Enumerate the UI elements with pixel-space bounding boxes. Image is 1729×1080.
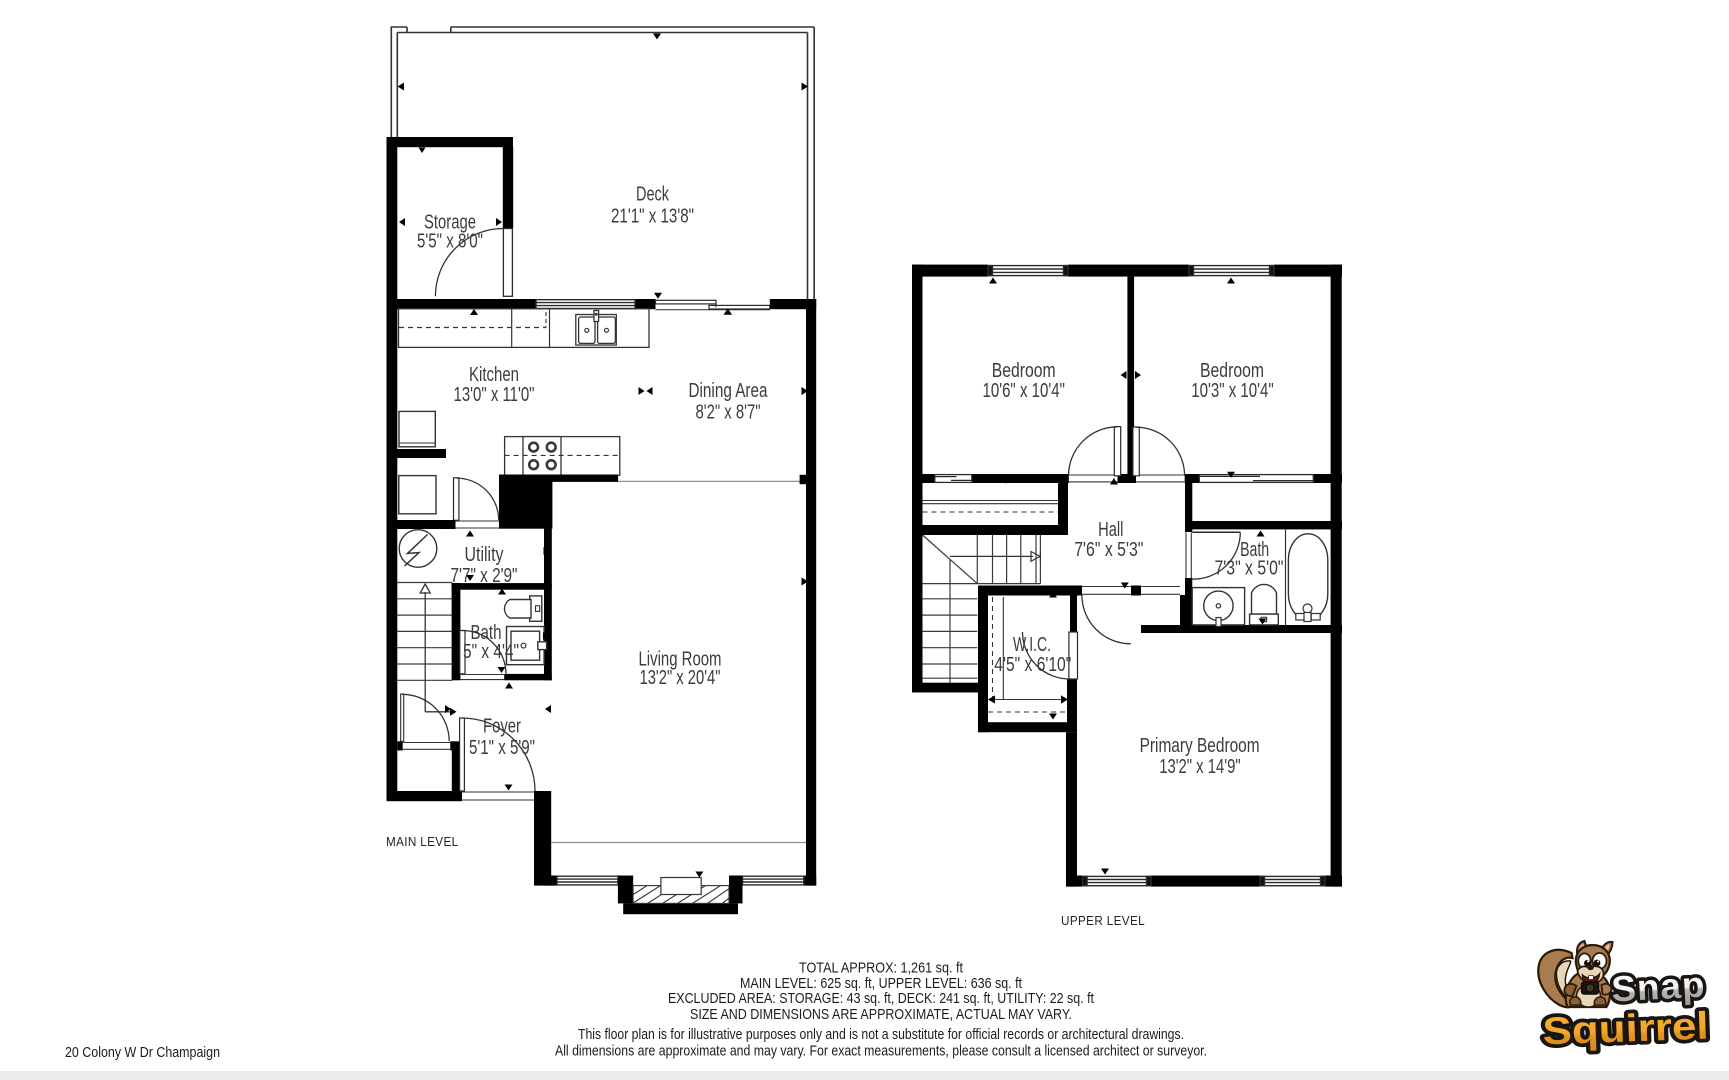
svg-text:Snap: Snap: [1610, 964, 1706, 1010]
svg-text:4'5" x 6'10": 4'5" x 6'10": [994, 654, 1071, 676]
svg-text:Squirrel: Squirrel: [1542, 1005, 1709, 1054]
svg-text:Deck: Deck: [636, 184, 670, 206]
svg-text:21'1" x 13'8": 21'1" x 13'8": [611, 206, 694, 228]
svg-text:13'2" x 20'4": 13'2" x 20'4": [640, 667, 721, 689]
svg-text:Primary Bedroom: Primary Bedroom: [1140, 735, 1260, 757]
svg-text:SIZE AND DIMENSIONS ARE APPROX: SIZE AND DIMENSIONS ARE APPROXIMATE, ACT…: [690, 1006, 1072, 1023]
svg-text:20 Colony W Dr Champaign: 20 Colony W Dr Champaign: [65, 1044, 220, 1061]
svg-text:7'7" x 2'9": 7'7" x 2'9": [451, 565, 518, 587]
svg-text:8'2" x 8'7": 8'2" x 8'7": [696, 402, 761, 424]
svg-text:7'6" x 5'3": 7'6" x 5'3": [1074, 539, 1143, 561]
svg-text:Bedroom: Bedroom: [992, 360, 1056, 382]
svg-text:Utility: Utility: [465, 544, 504, 566]
svg-text:5'5" x 8'0": 5'5" x 8'0": [417, 231, 483, 253]
svg-text:This floor plan is for illustr: This floor plan is for illustrative purp…: [578, 1026, 1184, 1043]
svg-text:TOTAL APPROX: 1,261 sq. ft: TOTAL APPROX: 1,261 sq. ft: [799, 960, 964, 977]
svg-text:10'6" x 10'4": 10'6" x 10'4": [983, 380, 1065, 402]
svg-text:Hall: Hall: [1098, 519, 1123, 541]
svg-text:Foyer: Foyer: [483, 716, 521, 738]
svg-text:7'3" x 5'0": 7'3" x 5'0": [1215, 558, 1284, 580]
svg-text:All dimensions are approximate: All dimensions are approximate and may v…: [555, 1043, 1207, 1060]
svg-text:5'1" x 5'9": 5'1" x 5'9": [469, 737, 535, 759]
svg-text:UPPER LEVEL: UPPER LEVEL: [1061, 913, 1145, 928]
svg-text:Dining Area: Dining Area: [689, 380, 769, 402]
svg-text:Kitchen: Kitchen: [469, 364, 519, 386]
svg-text:10'3" x 10'4": 10'3" x 10'4": [1191, 380, 1273, 402]
svg-text:5" x 4'4": 5" x 4'4": [463, 641, 519, 663]
svg-text:Bedroom: Bedroom: [1200, 360, 1264, 382]
svg-text:MAIN LEVEL: MAIN LEVEL: [386, 834, 459, 849]
svg-text:W.I.C.: W.I.C.: [1013, 634, 1051, 656]
svg-text:EXCLUDED AREA: STORAGE: 43 sq.: EXCLUDED AREA: STORAGE: 43 sq. ft, DECK:…: [668, 990, 1095, 1007]
svg-text:13'0" x 11'0": 13'0" x 11'0": [454, 384, 535, 406]
svg-text:13'2" x 14'9": 13'2" x 14'9": [1159, 756, 1240, 778]
